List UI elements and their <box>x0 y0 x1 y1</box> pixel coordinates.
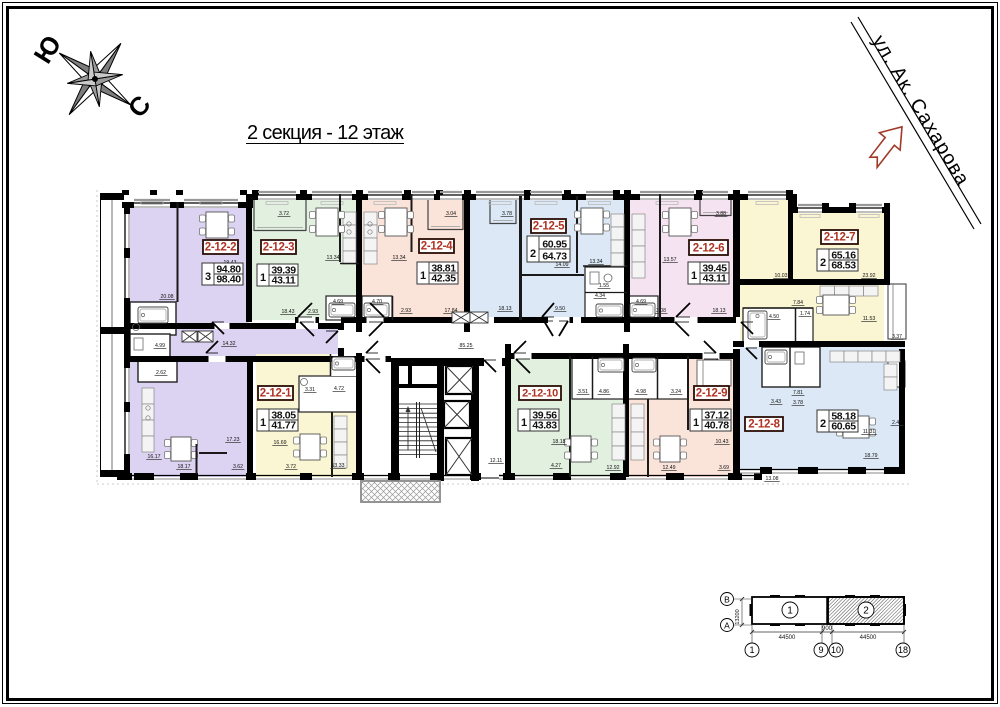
svg-text:2-12-2: 2-12-2 <box>205 241 236 253</box>
svg-text:1: 1 <box>787 606 793 617</box>
svg-text:2-12-4: 2-12-4 <box>421 240 453 252</box>
svg-text:2-12-7: 2-12-7 <box>824 231 855 243</box>
svg-text:9: 9 <box>818 645 823 655</box>
svg-text:2 секция - 12 этаж: 2 секция - 12 этаж <box>247 122 405 144</box>
svg-text:13200: 13200 <box>735 609 741 624</box>
svg-text:10: 10 <box>831 645 841 655</box>
svg-text:1: 1 <box>260 272 266 284</box>
svg-text:43.83: 43.83 <box>532 419 557 431</box>
svg-text:68.53: 68.53 <box>831 259 856 271</box>
svg-text:18: 18 <box>898 645 908 655</box>
svg-text:2: 2 <box>820 257 826 269</box>
svg-text:44500: 44500 <box>860 635 877 641</box>
svg-text:2-12-1: 2-12-1 <box>260 387 292 399</box>
svg-text:1: 1 <box>420 270 426 282</box>
svg-text:43.11: 43.11 <box>272 274 296 286</box>
svg-text:3: 3 <box>205 271 211 283</box>
svg-text:2: 2 <box>863 606 869 617</box>
svg-text:2-12-10: 2-12-10 <box>522 387 558 399</box>
svg-text:1: 1 <box>693 417 699 429</box>
svg-text:44500: 44500 <box>779 635 796 641</box>
svg-text:2-12-3: 2-12-3 <box>263 241 294 253</box>
svg-text:60.95: 60.95 <box>542 238 567 250</box>
svg-text:1: 1 <box>691 270 697 282</box>
svg-text:2: 2 <box>530 248 536 260</box>
svg-text:А: А <box>724 621 730 631</box>
svg-text:1: 1 <box>749 645 754 655</box>
svg-text:60.65: 60.65 <box>831 420 856 432</box>
svg-text:В: В <box>724 595 730 605</box>
svg-text:2: 2 <box>820 418 826 430</box>
svg-text:2-12-8: 2-12-8 <box>748 418 780 430</box>
svg-text:1: 1 <box>521 417 527 429</box>
svg-text:41.77: 41.77 <box>271 419 296 431</box>
svg-text:1: 1 <box>260 417 266 429</box>
svg-text:2-12-5: 2-12-5 <box>533 220 565 232</box>
svg-text:42.35: 42.35 <box>431 272 456 284</box>
svg-text:900: 900 <box>822 626 833 632</box>
svg-text:2-12-6: 2-12-6 <box>693 242 724 254</box>
svg-text:40.78: 40.78 <box>704 419 729 431</box>
svg-text:64.73: 64.73 <box>542 250 567 262</box>
svg-text:98.40: 98.40 <box>216 273 241 285</box>
svg-text:43.11: 43.11 <box>703 272 727 284</box>
svg-text:2-12-9: 2-12-9 <box>696 387 727 399</box>
